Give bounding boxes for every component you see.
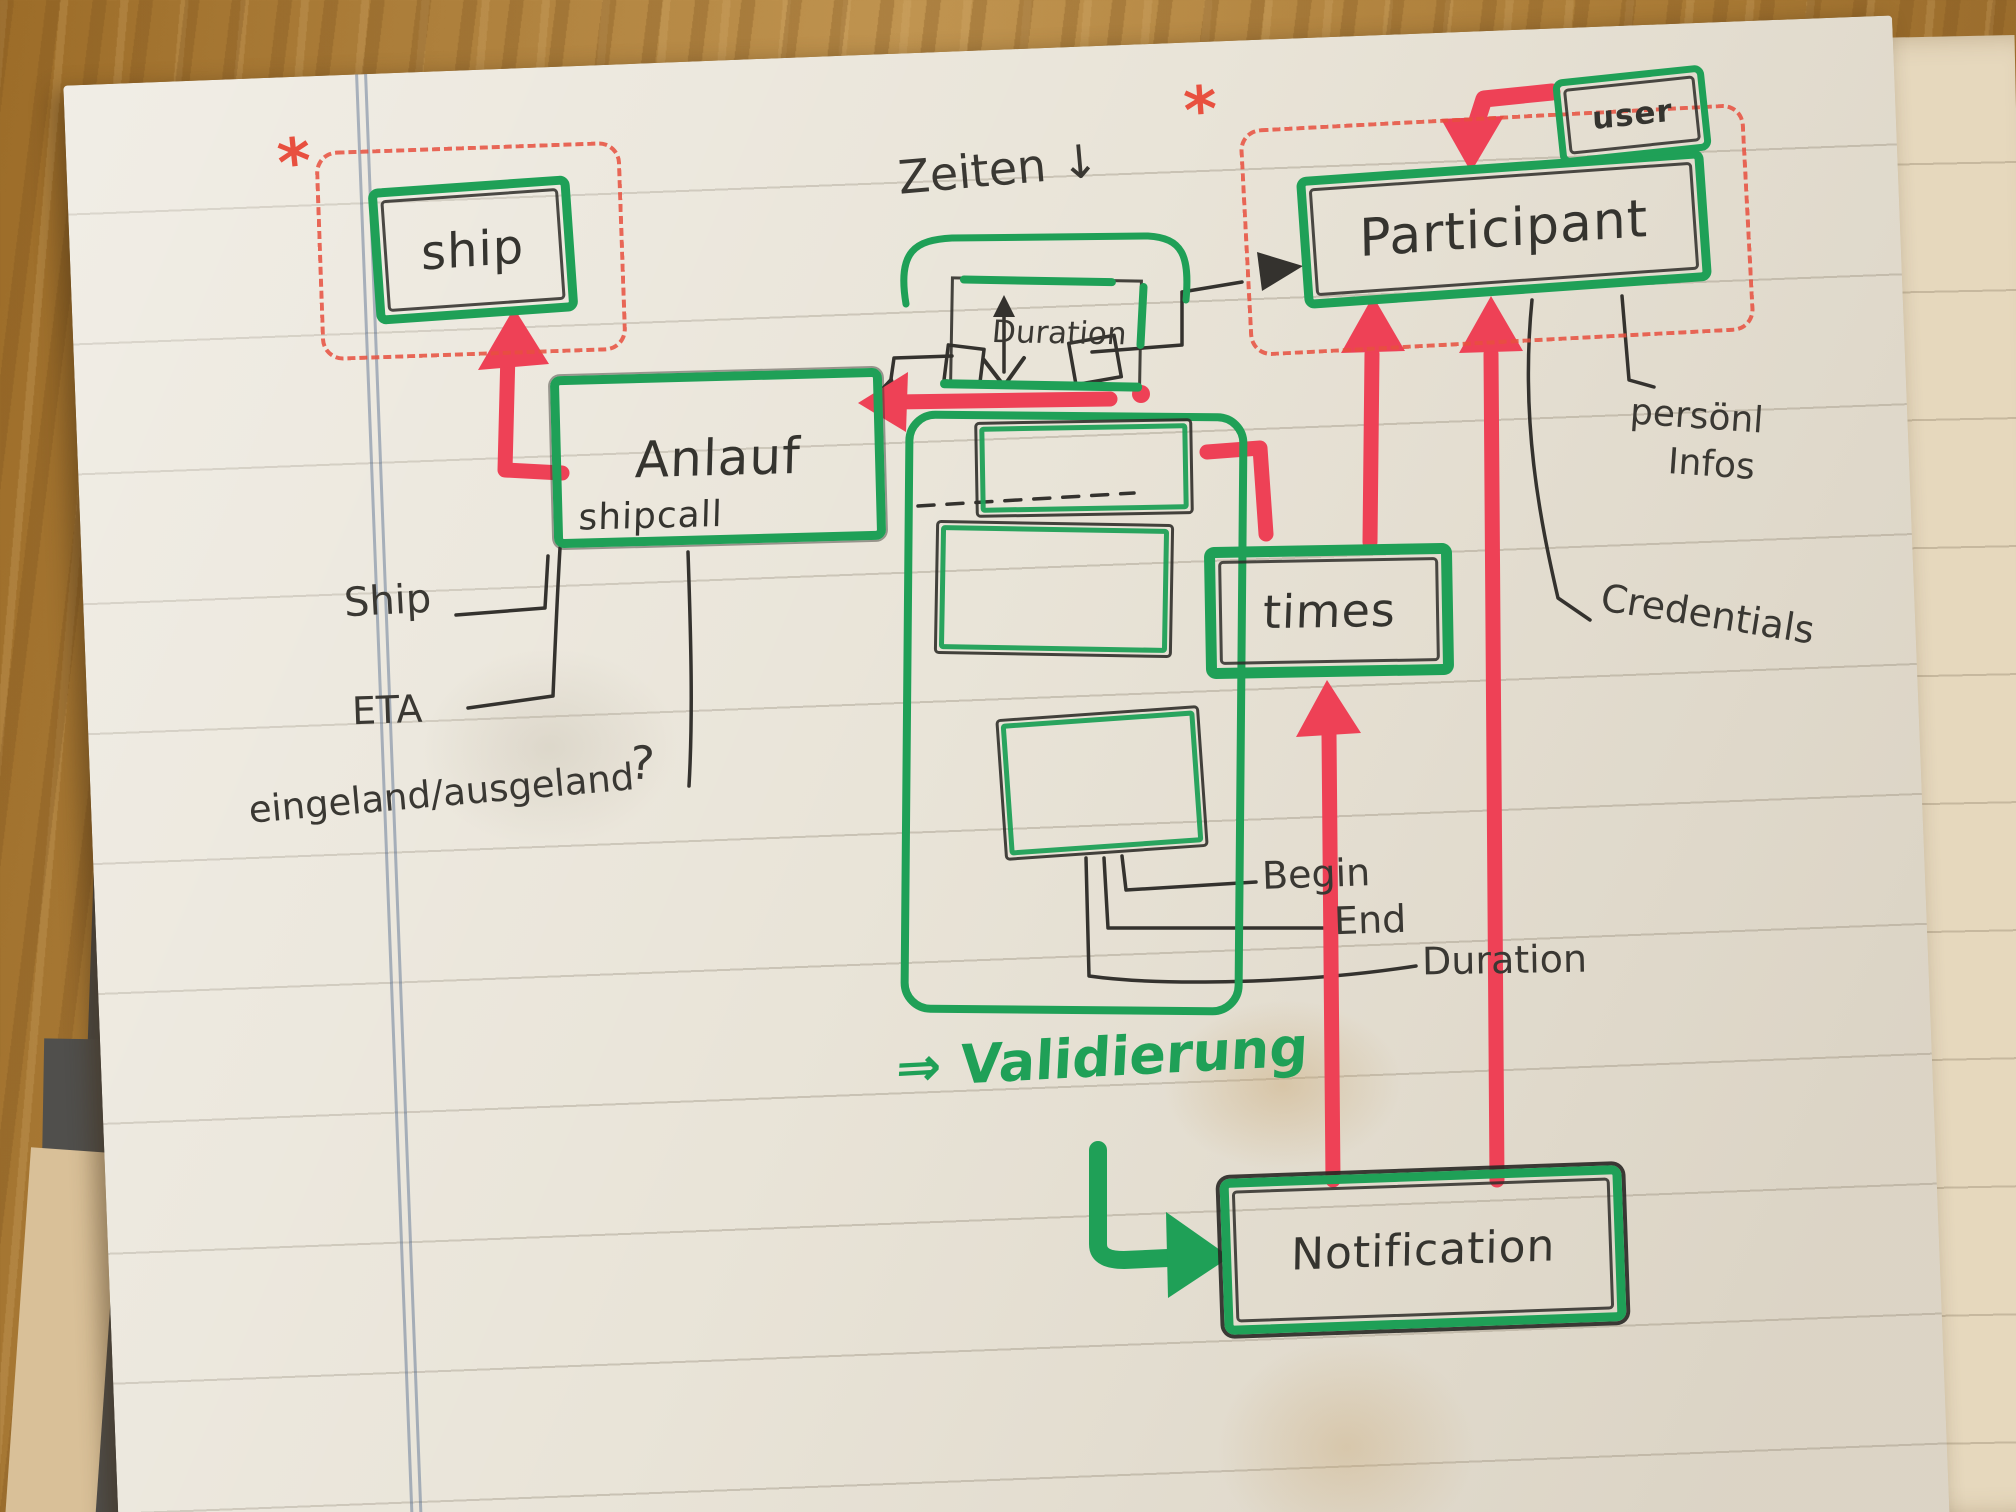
red-arrowhead-into-times (1296, 680, 1361, 737)
connector-einaus-attribute (688, 552, 691, 786)
notification-box: Notification (1219, 1165, 1626, 1335)
eta-attribute-label: ETA (351, 687, 423, 733)
red-arrow-times-to-shipcall-shaft (895, 399, 1110, 402)
duration-box-label: Duration (991, 314, 1129, 352)
question-mark: ? (628, 735, 656, 791)
duration-box: Duration (949, 276, 1143, 389)
time-slot-box-2 (934, 520, 1174, 658)
end-attribute-label: End (1333, 897, 1407, 943)
time-slot-box-3 (995, 705, 1208, 861)
red-arrow-times-to-participant-shaft (1370, 354, 1372, 542)
sketch-diagram: * * Duration ship Anlauf shipcall Partic… (0, 0, 2016, 1512)
ship-box-label: ship (421, 218, 525, 281)
times-label: times (1262, 583, 1397, 639)
red-arrow-notification-to-participant-shaft (1491, 354, 1497, 1180)
red-arrow-notification-to-times-shaft (1329, 734, 1333, 1180)
asterisk-participant: * (1181, 73, 1220, 149)
notification-label: Notification (1290, 1220, 1555, 1280)
shipcall-label: shipcall (578, 494, 723, 539)
begin-attribute-label: Begin (1261, 850, 1371, 898)
ship-box: ship (368, 175, 579, 325)
connector-ship-attribute (456, 556, 548, 615)
personal-infos-label-line2: Infos (1667, 441, 1757, 488)
duration-attribute-label: Duration (1422, 937, 1588, 984)
user-box: user (1552, 64, 1712, 165)
validation-elbow-arrow (1098, 1150, 1168, 1260)
time-slot-box-1 (974, 418, 1194, 518)
times-box: times (1204, 543, 1454, 679)
anlauf-label: Anlauf (634, 427, 801, 489)
anlauf-shipcall-box: Anlauf shipcall (550, 368, 886, 549)
ship-attribute-label: Ship (343, 576, 433, 627)
connector-participant-credentials (1528, 300, 1590, 620)
